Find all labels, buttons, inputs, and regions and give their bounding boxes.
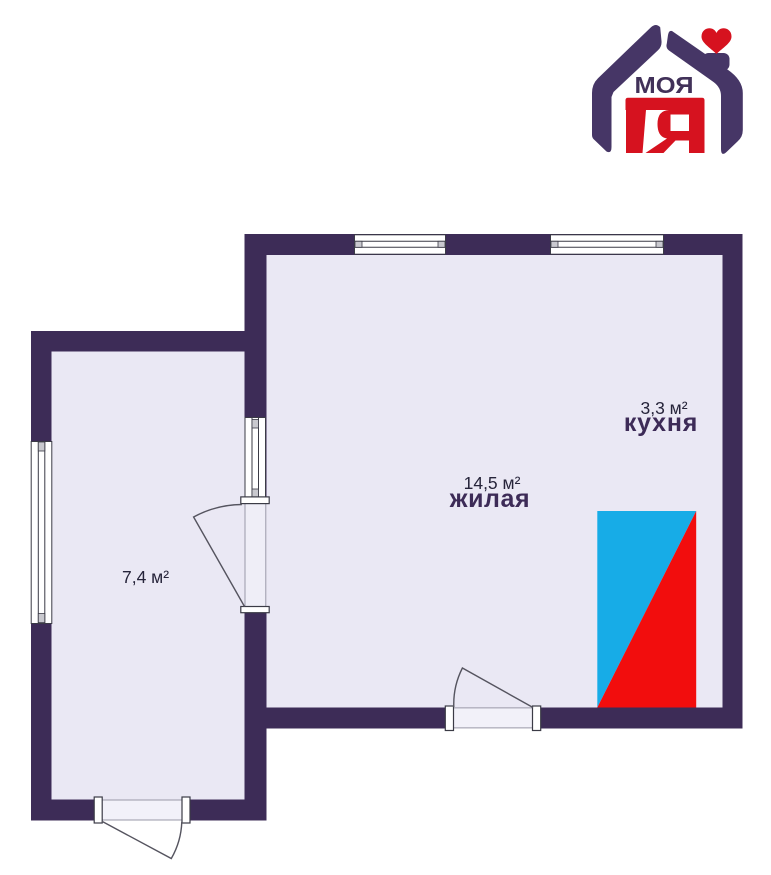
svg-text:жилая: жилая [449,485,530,513]
svg-text:кухня: кухня [624,409,698,437]
svg-text:МОЯ: МОЯ [635,72,694,98]
svg-text:7,4 м²: 7,4 м² [122,567,169,587]
